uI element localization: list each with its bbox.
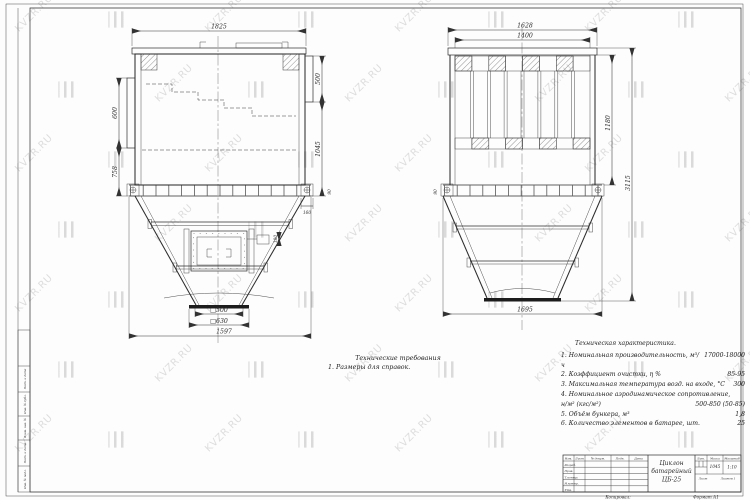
tech-label: н/м² (кгс/м²) (561, 400, 601, 410)
dim-front-top: 1825 (211, 24, 227, 31)
tb-col-podp: Подп. (615, 457, 625, 461)
side-stamp-label: Подп. и дата (23, 368, 27, 390)
doc-title-line2: батарейный (651, 468, 692, 475)
technical-requirements-title: Технические требования (328, 354, 468, 363)
tech-label: 5. Объём бункера, м³ (561, 410, 630, 420)
tech-row: 2. Коэффициент очистки, η %85-95 (561, 370, 745, 380)
tech-row: 4. Номинальное аэродинамическое сопротив… (561, 390, 745, 400)
battery-tubes (470, 71, 574, 138)
dim-front-hatch-offset: 180 (273, 235, 278, 243)
tech-value: 25 (733, 419, 745, 429)
dim-front-outlet-height: 500 (315, 73, 322, 85)
dim-side-joint: 90 (433, 189, 438, 195)
tech-value: 500-850 (50-85) (691, 400, 745, 410)
dim-front-flange-plate: 160 (303, 210, 311, 215)
tech-label: 4. Номинальное аэродинамическое сопротив… (561, 390, 730, 400)
dim-front-inlet-height: 600 (112, 107, 119, 119)
tb-sheets-label: Листов 1 (720, 477, 736, 481)
doc-title-line1: Циклон (659, 460, 683, 467)
tb-format-label: Формат А1 (693, 495, 719, 500)
tech-label: 3. Максимальная температура возд. на вхо… (561, 380, 725, 390)
tech-row: н/м² (кгс/м²)500-850 (50-85) (561, 400, 745, 410)
tb-mass-value: 1045 (710, 464, 721, 469)
tb-row-nkontr: Н.контр. (564, 482, 579, 486)
dim-front-lower-height: 758 (112, 166, 119, 178)
dim-front-outlet-inner: □500 (210, 307, 228, 314)
tb-col-izm: Изм. (564, 457, 572, 461)
tech-characteristics-title: Техническая характеристика. (575, 339, 745, 349)
side-view: 1628 1400 (433, 23, 636, 331)
technical-requirements: Технические требования 1. Размеры для сп… (328, 354, 468, 372)
side-stamp: Подп. и дата Инв. № дубл. Взам. инв. № П… (18, 330, 30, 492)
tb-row-prov: Пров. (564, 469, 574, 473)
tb-scale-value: 1:10 (727, 465, 737, 470)
tech-value: 85-95 (723, 370, 745, 380)
tb-col-list: Лист (574, 457, 584, 461)
tb-row-razrab: Разраб. (564, 463, 577, 467)
tb-lit-label: Лит. (696, 457, 705, 461)
doc-title-line3: ЦБ-25 (662, 477, 681, 484)
tech-value: 1,8 (731, 410, 745, 420)
tech-row: 6. Количество элементов в батарее, шт.25 (561, 419, 745, 429)
tb-col-data: Дата (633, 457, 643, 461)
title-block: Изм. Лист № докум. Подп. Дата Разраб. Пр… (563, 455, 741, 500)
drawing-sheet: KVZR.RUKVZR.RUKVZR.RUKVZR.RUKVZR.RUKVZR.… (0, 0, 750, 500)
tech-row: 1. Номинальная производительность, м³/ч1… (561, 351, 745, 371)
dim-front-bottom: 1597 (216, 329, 232, 336)
tb-row-tkontr: Т.контр. (565, 475, 579, 479)
dim-side-total-height: 3115 (625, 175, 632, 191)
dim-side-top: 1628 (517, 23, 533, 30)
access-hatch (184, 229, 269, 273)
front-view: 1825 600 758 500 1045 160 90 180 (112, 24, 332, 346)
tb-copied-label: Копировал: (604, 495, 631, 500)
tech-label: 2. Коэффициент очистки, η % (561, 370, 661, 380)
tech-characteristics: Техническая характеристика. 1. Номинальн… (561, 339, 745, 429)
tech-label: 6. Количество элементов в батарее, шт. (561, 419, 700, 429)
tb-col-dokum: № докум. (590, 457, 605, 461)
tech-value: 300 (729, 380, 745, 390)
dim-front-joint: 90 (327, 189, 332, 195)
side-stamp-label: Инв. № подл. (23, 469, 27, 490)
dim-side-top-inner: 1400 (517, 33, 533, 40)
tb-mass-label: Масса (709, 457, 720, 461)
tb-row-utv: Утв. (565, 488, 573, 492)
side-stamp-label: Подп. и дата (23, 442, 27, 464)
side-stamp-label: Инв. № дубл. (23, 394, 27, 415)
dim-side-body-height: 1180 (605, 115, 612, 131)
tech-label: 1. Номинальная производительность, м³/ч (561, 351, 700, 371)
tech-value: 17000-18000 (700, 351, 745, 371)
technical-requirements-line: 1. Размеры для справок. (328, 363, 468, 372)
tb-sheet-label: Лист (698, 477, 708, 481)
dim-front-outlet-outer: □630 (210, 318, 228, 325)
dim-side-bottom: 1695 (517, 307, 533, 314)
tb-scale-label: Масштаб (723, 457, 740, 461)
dim-front-body-height: 1045 (315, 141, 322, 157)
side-stamp-label: Взам. инв. № (23, 418, 27, 439)
tech-row: 3. Максимальная температура возд. на вхо… (561, 380, 745, 390)
tech-value (741, 390, 745, 400)
tech-row: 5. Объём бункера, м³1,8 (561, 410, 745, 420)
